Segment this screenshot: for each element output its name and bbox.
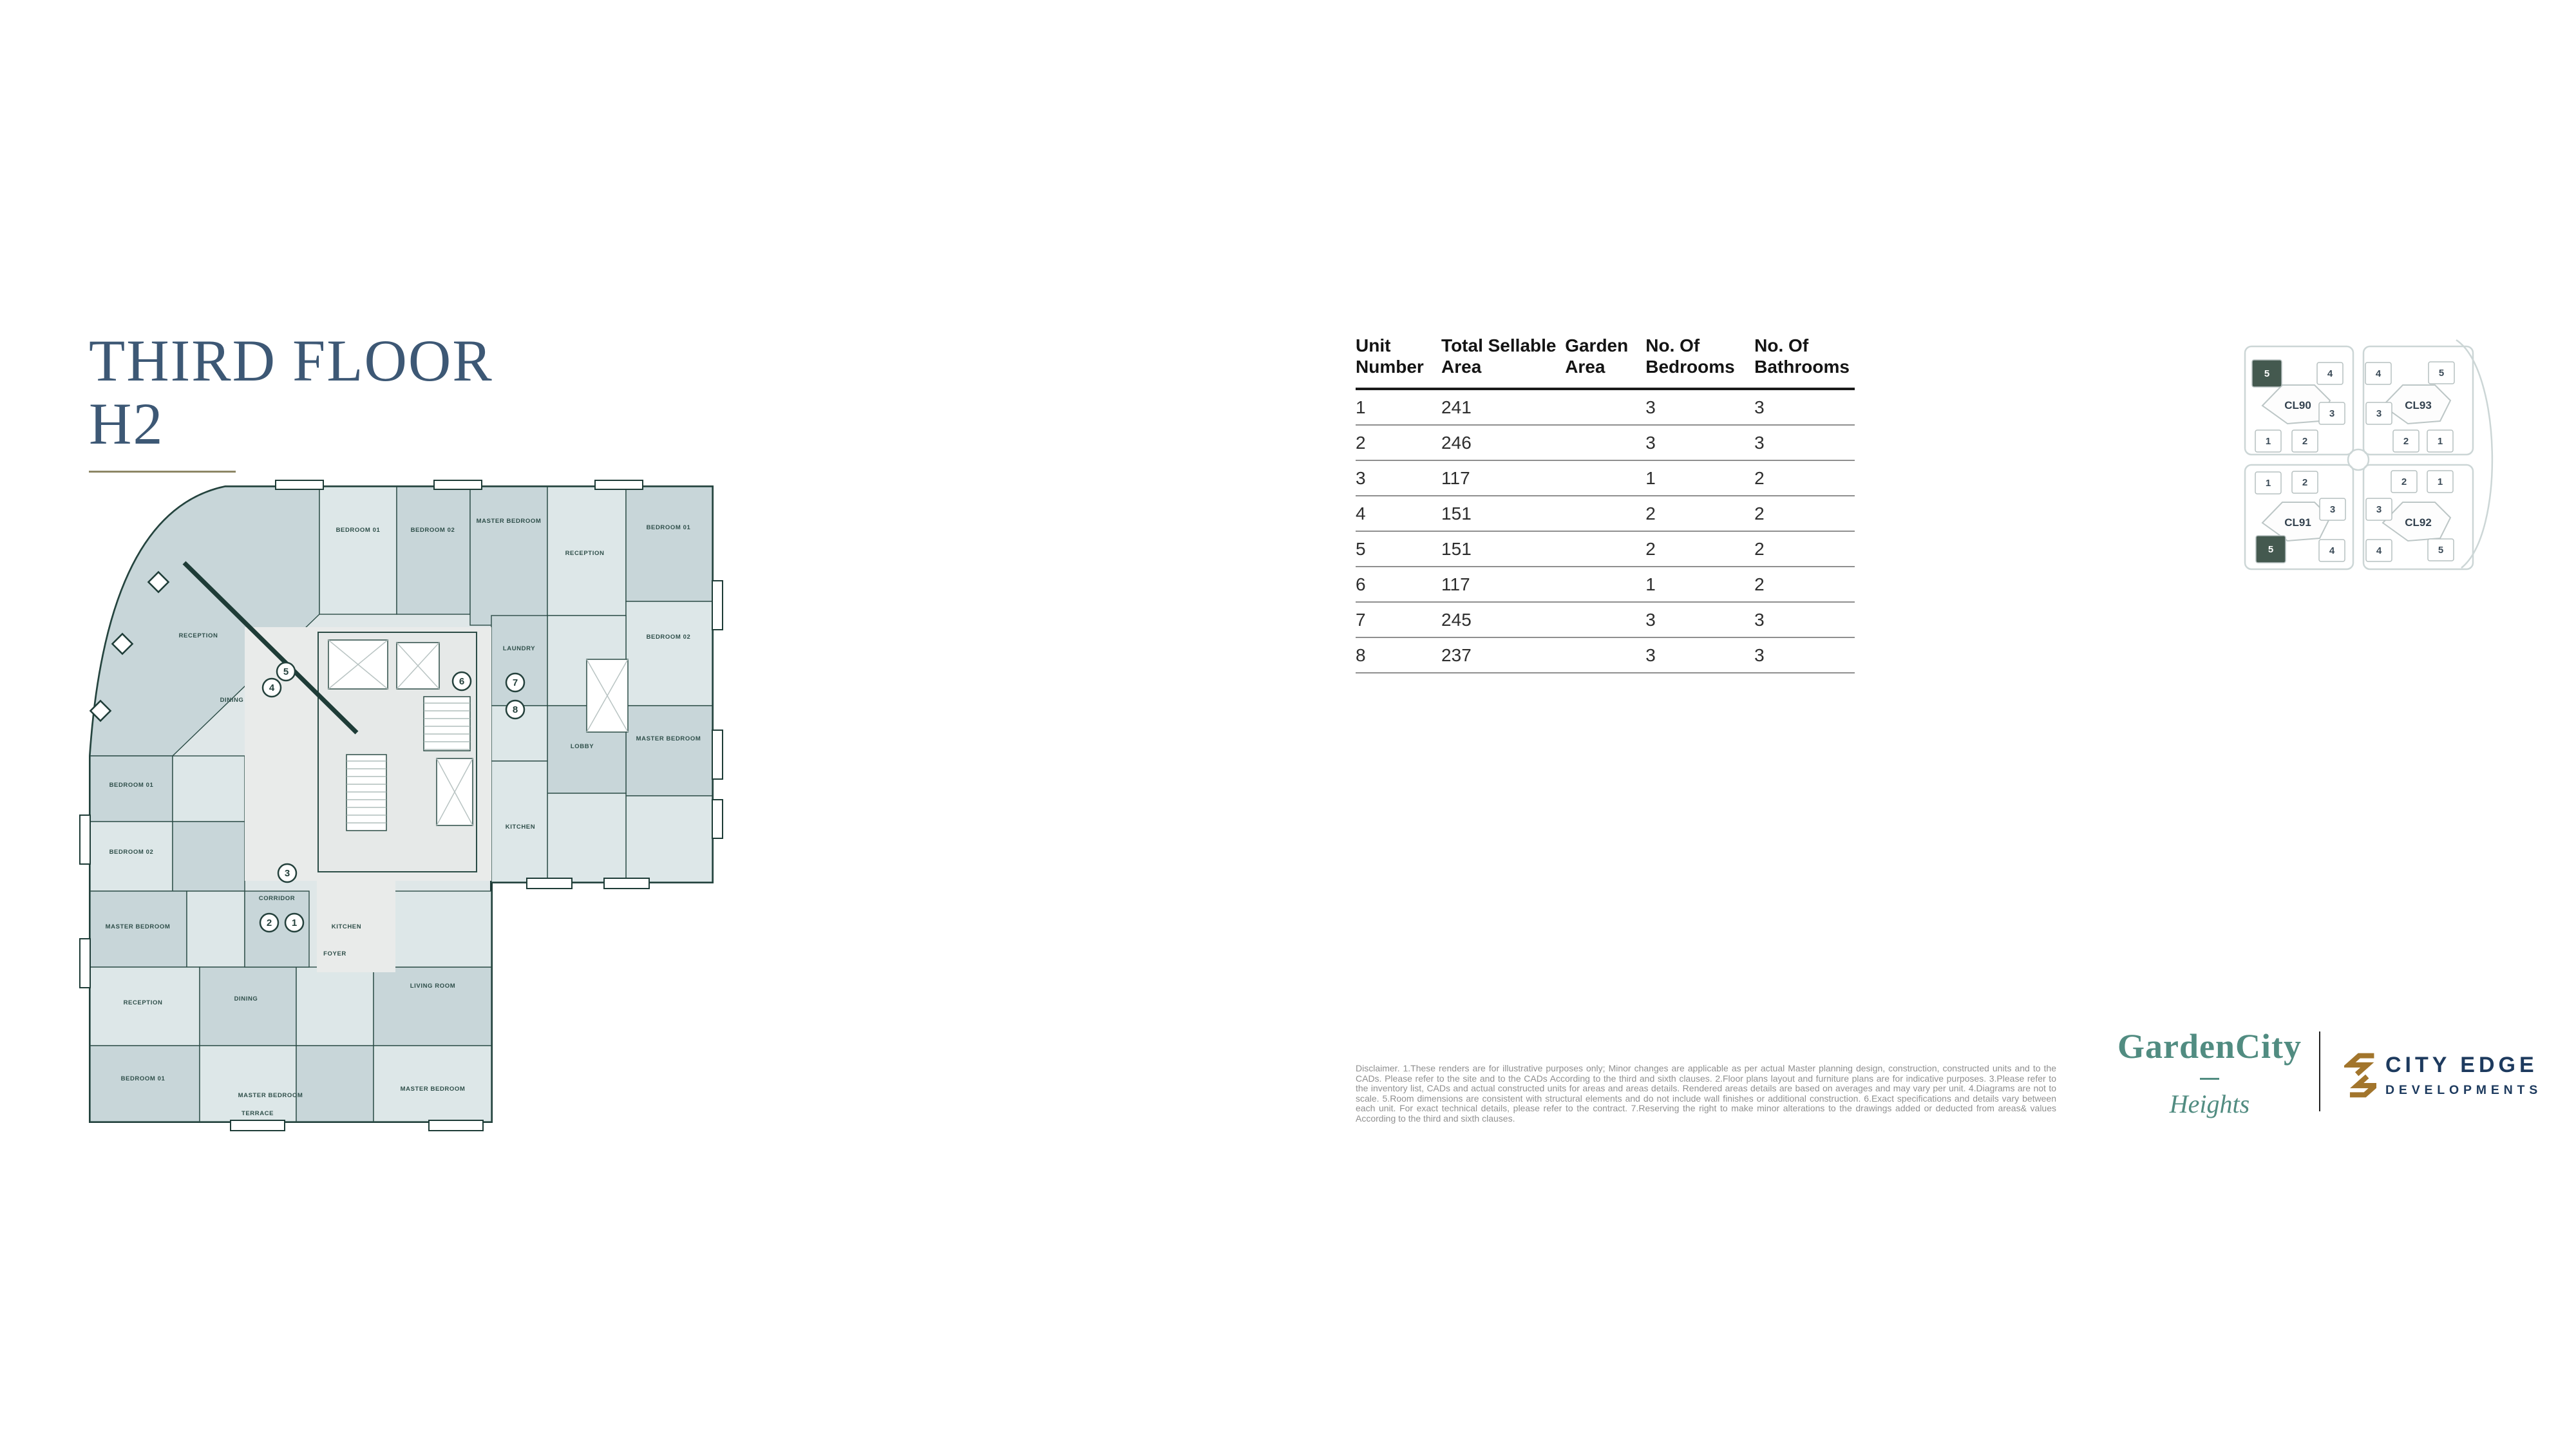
cell-sellable_area: 151 [1441, 496, 1565, 531]
cell-unit: 8 [1356, 637, 1441, 673]
cell-bedrooms: 1 [1645, 460, 1754, 496]
room [90, 967, 200, 1046]
cell-bedrooms: 3 [1645, 637, 1754, 673]
room-label: MASTER BEDROOM [106, 923, 171, 930]
room-label: MASTER BEDROOM [401, 1086, 466, 1093]
building-number: 3 [2376, 504, 2382, 515]
cell-bathrooms: 2 [1754, 531, 1855, 567]
cell-unit: 4 [1356, 496, 1441, 531]
balcony [595, 480, 643, 489]
room [626, 487, 712, 601]
column-header: No. Of Bathrooms [1754, 335, 1855, 389]
cell-bedrooms: 3 [1645, 425, 1754, 460]
cell-sellable_area: 237 [1441, 637, 1565, 673]
cityedge-name: CITY EDGE [2385, 1053, 2542, 1078]
building-number: 2 [2401, 476, 2407, 487]
room [626, 796, 712, 882]
room [90, 822, 173, 891]
room [296, 967, 374, 1046]
building-number: 4 [2327, 368, 2333, 379]
site-key-plan: CL9054321CL9345321CL9112354CL9221345 [2240, 328, 2513, 573]
room [470, 487, 547, 625]
page-title-building: H2 [89, 393, 493, 456]
cell-garden_area [1565, 389, 1645, 425]
room-label: TERRACE [241, 1110, 274, 1117]
room-label: FOYER [323, 950, 346, 957]
roundabout [2348, 449, 2369, 470]
building-number: 5 [2438, 545, 2443, 556]
balcony [712, 730, 723, 779]
cell-bedrooms: 2 [1645, 496, 1754, 531]
building-number: 2 [2302, 477, 2307, 488]
room-label: LAUNDRY [503, 645, 535, 652]
column-header: No. Of Bedrooms [1645, 335, 1754, 389]
room-label: LOBBY [571, 743, 594, 750]
cell-bathrooms: 2 [1754, 460, 1855, 496]
cityedge-mark-icon [2344, 1048, 2376, 1102]
room-label: DINING [234, 995, 258, 1003]
unit-table: Unit NumberTotal Sellable AreaGarden Are… [1356, 335, 1855, 673]
cell-unit: 2 [1356, 425, 1441, 460]
building-number: 3 [2329, 408, 2334, 419]
unit-marker-number: 7 [513, 677, 518, 688]
cell-bathrooms: 3 [1754, 389, 1855, 425]
building-number: 3 [2376, 408, 2382, 419]
cluster-label: CL93 [2405, 399, 2432, 411]
unit-table-header: Unit NumberTotal Sellable AreaGarden Are… [1356, 335, 1855, 389]
building-number: 5 [2439, 368, 2444, 379]
cell-bedrooms: 1 [1645, 567, 1754, 602]
building-number: 4 [2376, 368, 2382, 379]
floor-plan: RECEPTIONDININGBEDROOM 01BEDROOM 02MASTE… [76, 478, 743, 1135]
room-label: DINING [220, 697, 244, 704]
column-header: Unit Number [1356, 335, 1441, 389]
room [296, 1046, 374, 1122]
unit-marker-number: 2 [267, 918, 272, 928]
cell-sellable_area: 241 [1441, 389, 1565, 425]
room [626, 706, 712, 796]
table-row: 724533 [1356, 602, 1855, 637]
unit-marker-number: 6 [459, 676, 464, 687]
room [491, 616, 547, 706]
balcony [429, 1120, 483, 1131]
room [374, 1046, 491, 1122]
room-label: BEDROOM 01 [109, 782, 154, 789]
room-label: MASTER BEDROOM [238, 1092, 303, 1099]
cell-garden_area [1565, 637, 1645, 673]
building-number: 1 [2266, 478, 2271, 489]
title-block: THIRD FLOOR H2 [89, 330, 493, 473]
building-number: 1 [2438, 476, 2443, 487]
staircase [346, 755, 386, 831]
room [491, 761, 547, 882]
cell-unit: 6 [1356, 567, 1441, 602]
gardencity-wordmark: GardenCity [2117, 1026, 2302, 1066]
room [187, 891, 245, 967]
page-title-floor: THIRD FLOOR [89, 330, 493, 393]
unit-marker-number: 1 [292, 918, 297, 928]
balcony [80, 815, 90, 864]
balcony [80, 939, 90, 988]
table-row: 124133 [1356, 389, 1855, 425]
room-label: BEDROOM 02 [411, 527, 455, 534]
title-underline [89, 471, 236, 473]
room-label: RECEPTION [565, 550, 605, 557]
gardencity-dash [2200, 1078, 2219, 1080]
cell-bathrooms: 3 [1754, 637, 1855, 673]
cityedge-sub: DEVELOPMENTS [2385, 1083, 2542, 1098]
cell-bathrooms: 2 [1754, 496, 1855, 531]
cell-garden_area [1565, 531, 1645, 567]
cluster-label: CL90 [2284, 399, 2311, 411]
brochure-page: { "title": { "line1": "THIRD FLOOR", "li… [0, 0, 2576, 1450]
table-row: 823733 [1356, 637, 1855, 673]
cluster-label: CL92 [2405, 516, 2432, 529]
table-row: 311712 [1356, 460, 1855, 496]
table-row: 415122 [1356, 496, 1855, 531]
cell-garden_area [1565, 496, 1645, 531]
building-number: 2 [2302, 436, 2307, 447]
cell-bathrooms: 3 [1754, 602, 1855, 637]
cell-sellable_area: 246 [1441, 425, 1565, 460]
room [200, 967, 296, 1046]
room-label: BEDROOM 01 [647, 524, 691, 531]
cluster-label: CL91 [2284, 516, 2311, 529]
balcony [231, 1120, 285, 1131]
unit-marker-number: 8 [513, 704, 518, 715]
unit-marker-number: 4 [269, 683, 275, 693]
building-number: 4 [2376, 545, 2382, 556]
balcony [527, 878, 572, 889]
room [626, 601, 712, 706]
balcony [604, 878, 649, 889]
cell-sellable_area: 245 [1441, 602, 1565, 637]
building-number: 3 [2330, 504, 2335, 515]
cell-sellable_area: 117 [1441, 460, 1565, 496]
cell-bedrooms: 3 [1645, 389, 1754, 425]
unit-marker-number: 3 [285, 868, 290, 879]
room [397, 487, 470, 614]
cell-unit: 1 [1356, 389, 1441, 425]
balcony [434, 480, 482, 489]
gardencity-subbrand: Heights [2117, 1089, 2302, 1119]
room-label: KITCHEN [506, 824, 535, 831]
cityedge-logo: CITY EDGE DEVELOPMENTS [2344, 1048, 2542, 1102]
balcony [276, 480, 323, 489]
cell-bathrooms: 2 [1754, 567, 1855, 602]
room-label: MASTER BEDROOM [477, 518, 542, 525]
cityedge-text: CITY EDGE DEVELOPMENTS [2385, 1053, 2542, 1098]
column-header: Garden Area [1565, 335, 1645, 389]
table-row: 224633 [1356, 425, 1855, 460]
disclaimer-text: Disclaimer. 1.These renders are for illu… [1356, 1064, 2056, 1124]
cell-garden_area [1565, 460, 1645, 496]
room [90, 756, 173, 822]
building-number: 5 [2268, 544, 2273, 555]
cell-sellable_area: 117 [1441, 567, 1565, 602]
cell-garden_area [1565, 567, 1645, 602]
building-number: 1 [2438, 436, 2443, 447]
room-label: MASTER BEDROOM [636, 735, 701, 742]
cell-garden_area [1565, 425, 1645, 460]
gardencity-logo: GardenCity Heights [2117, 1026, 2302, 1119]
cell-unit: 5 [1356, 531, 1441, 567]
cell-bathrooms: 3 [1754, 425, 1855, 460]
room [374, 967, 491, 1046]
table-row: 515122 [1356, 531, 1855, 567]
cell-sellable_area: 151 [1441, 531, 1565, 567]
building-number: 5 [2264, 368, 2269, 379]
room [319, 487, 397, 614]
building-number: 4 [2329, 545, 2335, 556]
cell-bedrooms: 3 [1645, 602, 1754, 637]
building-number: 1 [2266, 436, 2271, 447]
room-label: LIVING ROOM [410, 983, 455, 990]
room-label: BEDROOM 01 [336, 527, 381, 534]
room-label: BEDROOM 01 [121, 1075, 166, 1082]
cell-garden_area [1565, 602, 1645, 637]
staircase [424, 697, 470, 751]
room-label: BEDROOM 02 [647, 634, 691, 641]
room-label: KITCHEN [332, 923, 361, 930]
room [90, 1046, 200, 1122]
unit-marker-number: 5 [283, 666, 289, 677]
table-row: 611712 [1356, 567, 1855, 602]
cell-unit: 3 [1356, 460, 1441, 496]
cell-bedrooms: 2 [1645, 531, 1754, 567]
logo-divider [2319, 1031, 2320, 1111]
building-number: 2 [2403, 436, 2409, 447]
room-label: RECEPTION [124, 999, 163, 1006]
room-label: RECEPTION [179, 632, 218, 639]
room [173, 822, 245, 891]
room [173, 756, 245, 822]
cell-unit: 7 [1356, 602, 1441, 637]
unit-table-body: 1241332246333117124151225151226117127245… [1356, 389, 1855, 673]
balcony [712, 581, 723, 630]
room-label: BEDROOM 02 [109, 849, 154, 856]
room [547, 793, 626, 882]
balcony [712, 800, 723, 838]
room-label: CORRIDOR [259, 895, 296, 902]
column-header: Total Sellable Area [1441, 335, 1565, 389]
